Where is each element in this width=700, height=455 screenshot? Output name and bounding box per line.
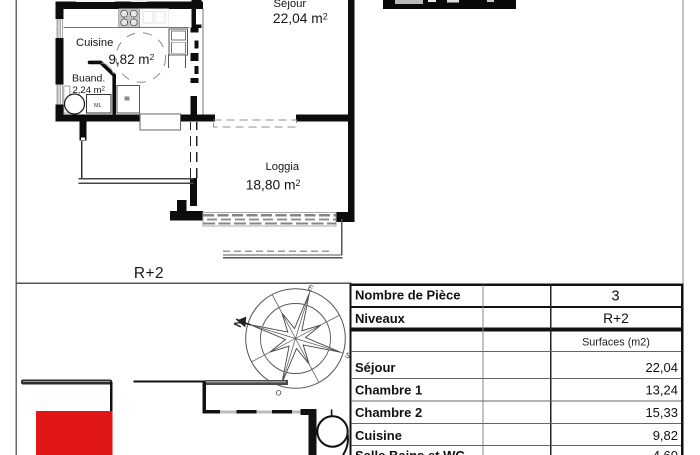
svg-text:Chambre 1: Chambre 1 [355,383,422,398]
svg-text:9,82: 9,82 [653,428,678,443]
svg-text:Chambre 2: Chambre 2 [355,405,422,420]
svg-text:Séjour: Séjour [274,0,307,10]
svg-text:ML: ML [94,103,102,109]
svg-text:Buand.: Buand. [72,73,105,85]
svg-text:Cuisine: Cuisine [355,428,402,443]
svg-text:Séjour: Séjour [355,360,395,375]
svg-text:3: 3 [611,289,619,305]
svg-text:15,33: 15,33 [645,405,678,420]
svg-text:18,80 m2: 18,80 m2 [246,178,301,193]
svg-text:Salle Bains et WC: Salle Bains et WC [355,448,465,455]
svg-text:Nombre de Pièce: Nombre de Pièce [355,288,461,303]
svg-text:13,24: 13,24 [645,383,678,398]
svg-text:22,04 m2: 22,04 m2 [273,11,328,26]
svg-text:Loggia: Loggia [266,161,300,173]
svg-text:22,04: 22,04 [645,360,678,375]
svg-text:R+2: R+2 [134,265,164,282]
svg-text:9,82 m2: 9,82 m2 [109,52,155,67]
svg-text:4,60: 4,60 [653,448,678,455]
svg-text:R+2: R+2 [603,311,629,326]
svg-text:Cuisine: Cuisine [76,37,113,49]
svg-text:Niveaux: Niveaux [355,311,406,326]
svg-text:Surfaces (m2): Surfaces (m2) [582,337,650,349]
